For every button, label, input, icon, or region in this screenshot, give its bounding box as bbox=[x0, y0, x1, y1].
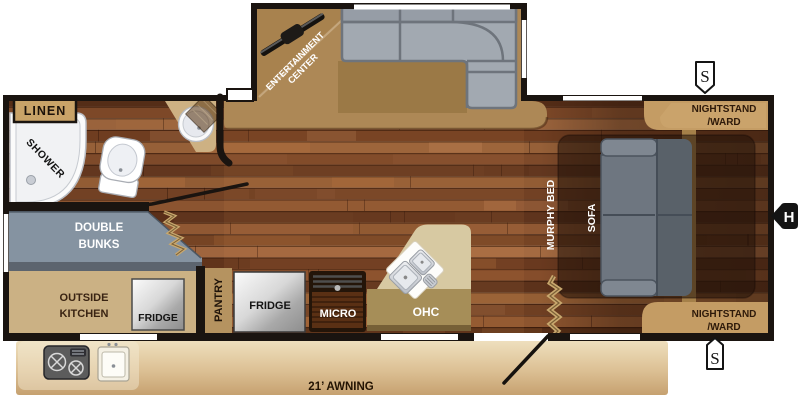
svg-text:S: S bbox=[700, 67, 709, 86]
svg-text:H: H bbox=[784, 209, 795, 226]
svg-text:PANTRY: PANTRY bbox=[213, 277, 225, 322]
svg-text:/WARD: /WARD bbox=[707, 322, 740, 333]
svg-text:NIGHTSTAND: NIGHTSTAND bbox=[692, 309, 757, 320]
svg-text:/WARD: /WARD bbox=[707, 117, 740, 128]
svg-text:SOFA: SOFA bbox=[586, 203, 598, 232]
svg-text:21’ AWNING: 21’ AWNING bbox=[308, 381, 373, 393]
svg-text:BUNKS: BUNKS bbox=[79, 239, 120, 251]
svg-text:S: S bbox=[710, 349, 719, 368]
svg-text:OHC: OHC bbox=[413, 305, 440, 319]
svg-text:DOUBLE: DOUBLE bbox=[75, 222, 124, 234]
svg-text:MURPHY BED: MURPHY BED bbox=[545, 179, 557, 250]
svg-text:FRIDGE: FRIDGE bbox=[249, 300, 291, 312]
svg-text:FRIDGE: FRIDGE bbox=[138, 312, 178, 324]
svg-text:OUTSIDE: OUTSIDE bbox=[60, 292, 109, 304]
svg-text:NIGHTSTAND: NIGHTSTAND bbox=[692, 104, 757, 115]
svg-text:LINEN: LINEN bbox=[24, 104, 67, 118]
svg-text:KITCHEN: KITCHEN bbox=[60, 308, 109, 320]
svg-text:MICRO: MICRO bbox=[320, 308, 357, 320]
